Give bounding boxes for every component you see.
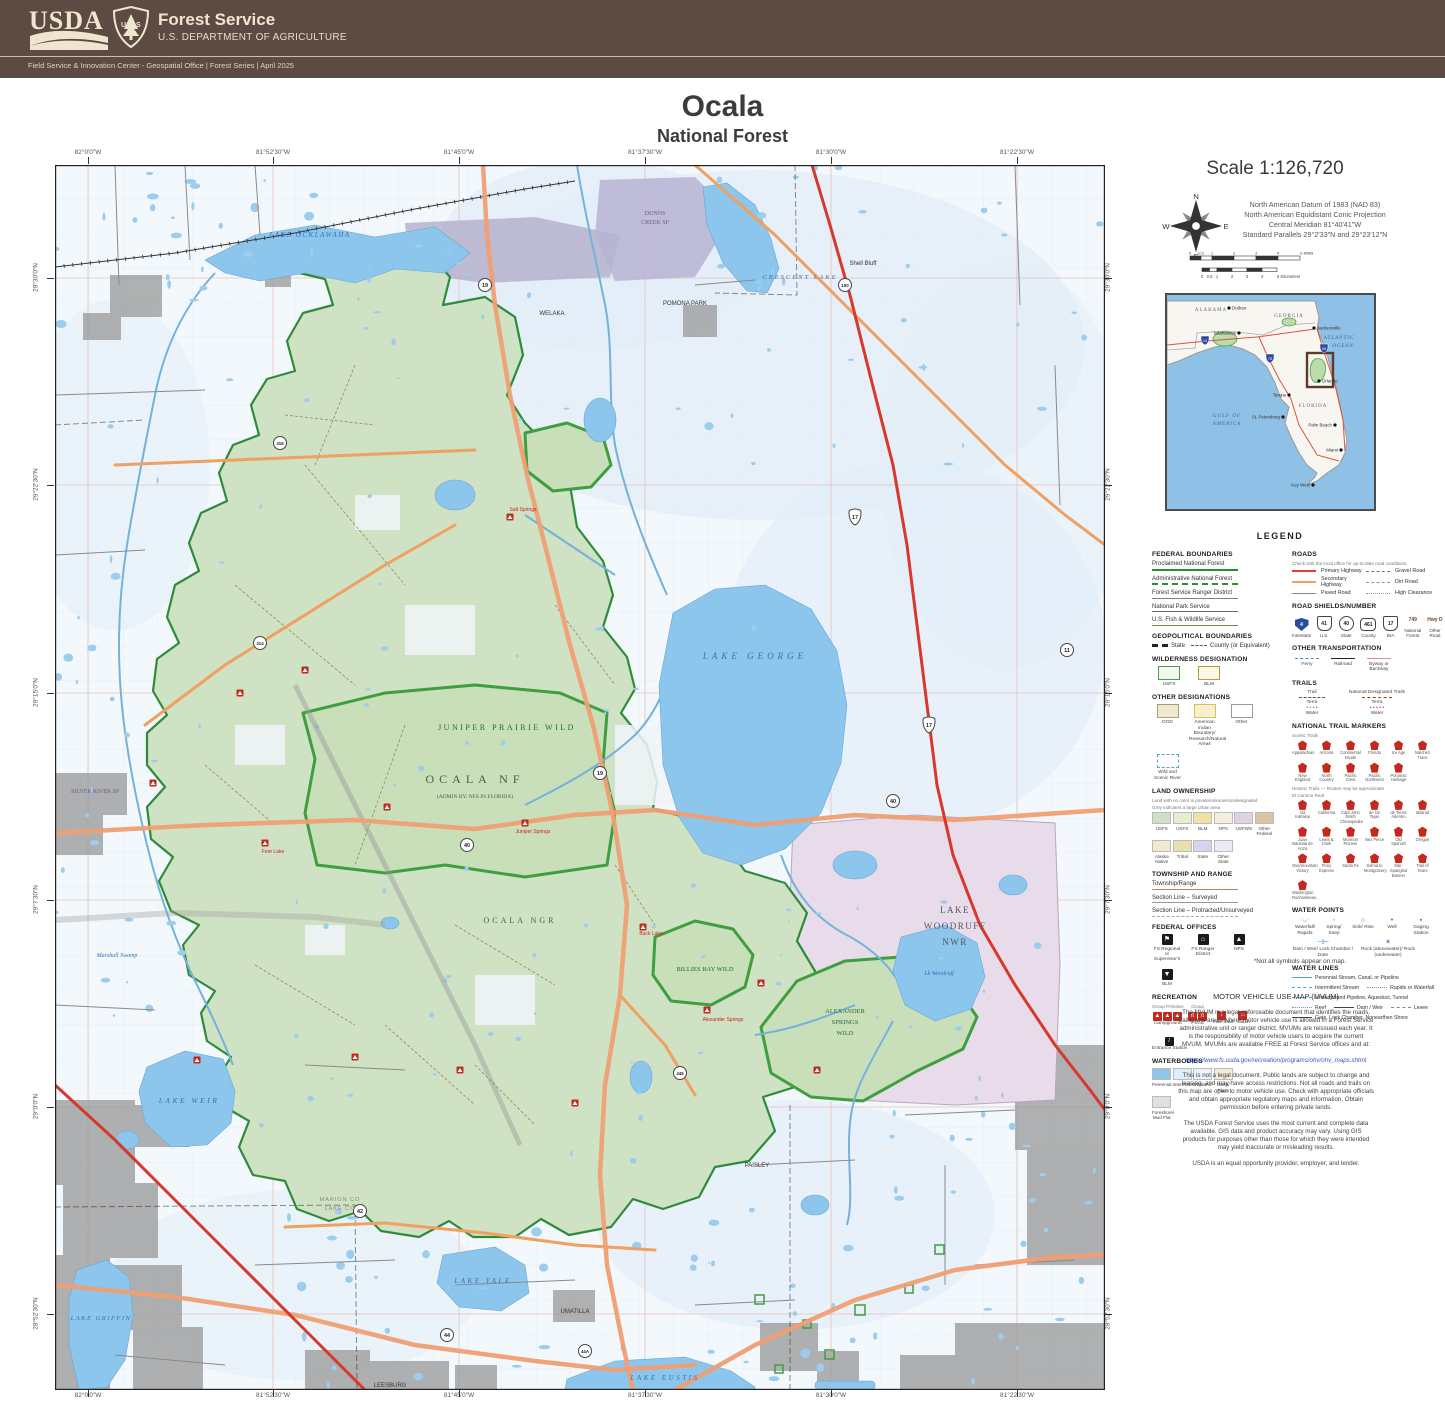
road-shield-sample: 41U.S. [1315,616,1333,638]
svg-text:11: 11 [1064,648,1070,654]
legend-col-2: ROADSCheck with the local office for up-… [1292,551,1444,1025]
campground-icon [457,1067,464,1074]
map-label: PAISLEY [745,1163,770,1169]
legend-swatch: Foreshore/ Mud Flat [1152,1096,1172,1120]
map-label: LAKE OCKLAWAHA [268,231,350,239]
legend-heading: TOWNSHIP AND RANGE [1152,871,1286,878]
svg-text:1: 1 [1216,274,1219,279]
trail-marker-icon: Mormon Pioneer [1340,827,1361,852]
campground-icon [507,514,514,521]
campground-icon [352,1054,359,1061]
scale-text: Scale 1:126,720 [1150,158,1400,180]
inset-region-label: AMERICA [1212,422,1241,427]
road-shield-sample: 461County [1359,618,1377,638]
legend-item: Administrative National Forest [1152,576,1286,586]
trail-marker-icon: Florida [1364,740,1385,760]
svg-text:10: 10 [1203,339,1207,343]
inset-city-label: Tampa [1273,393,1287,398]
lon-label: 81°52'30"W [243,149,303,156]
campground-icon [150,780,157,787]
trail-marker-icon: Santa Fe [1340,853,1361,878]
road-shield-sample: 749National Forest [1404,613,1422,638]
legend-swatch: DOD [1152,704,1183,726]
trail-marker-icon: Iditarod [1412,800,1433,825]
map-label: LAKE CO [325,1206,356,1212]
svg-text:40: 40 [464,843,470,849]
lon-label: 82°0'0"W [58,149,118,156]
svg-text:E: E [1224,222,1229,231]
lon-label: 81°45'0"W [429,149,489,156]
map-label: ALEXANDER [825,1008,865,1015]
map-label: MARION CO [320,1197,361,1203]
lon-label: 81°22'30"W [987,149,1047,156]
legend-heading: FEDERAL BOUNDARIES [1152,551,1286,558]
trail-marker-icon: Old Spanish [1388,827,1409,852]
trail-marker-icon: Pacific Crest [1340,763,1361,783]
road-shield: 11 [1061,644,1074,657]
map-label: Salt Springs [510,507,537,513]
legend-heading: TRAILS [1292,680,1444,687]
svg-text:445: 445 [676,1071,684,1076]
map-label: Shell Bluff [850,261,877,267]
inset-region-label: ALABAMA [1195,308,1227,313]
water-point-icon: ⊣⊢Dam / Weir/ Lock Chamber / Date [1292,939,1354,958]
legend-swatch: BLM [1192,666,1226,688]
trail-marker-icon: Continental Divide [1340,740,1361,760]
trail-marker-icon: California [1316,800,1337,825]
inset-city-label: Tallahassee [1213,331,1237,336]
mvum-paragraph: This is not a legal document. Public lan… [1178,1072,1374,1112]
mvum-paragraph: The MVUM is a legal enforceable document… [1178,1009,1374,1049]
legend-item: State [1152,643,1185,649]
inset-region-label: FLORIDA [1299,404,1328,409]
map-label: Alexander Springs [703,1017,744,1023]
trail-marker-icon: North Country [1316,763,1337,783]
map-label: WOODRUFF [924,921,987,931]
legend-heading: OTHER DESIGNATIONS [1152,694,1286,701]
legend-heading: WATER POINTS [1292,907,1444,914]
trail-marker-icon: Nez Perce [1364,827,1385,852]
svg-text:2: 2 [1233,252,1236,256]
map-label: OCALA NGR [483,916,556,925]
svg-text:W: W [1162,222,1170,231]
road-shield-sample: 4Interstate [1292,618,1311,638]
map-label: CREEK SP [641,220,670,226]
svg-text:5 Miles: 5 Miles [1300,252,1313,256]
inset-region-label: GULF OF [1213,414,1241,419]
legend-item: Section Line – Surveyed [1152,895,1286,904]
map-label: Lk Woodruff [923,970,955,977]
campground-icon [384,804,391,811]
svg-text:4: 4 [1277,252,1280,256]
legend-swatch: NPS [1214,812,1234,831]
svg-text:100: 100 [841,283,849,288]
map-label: DUNNS [645,211,666,217]
map-label: LAKE [940,905,970,915]
svg-text:314: 314 [256,641,264,646]
water-point-icon: ✶Rock (abovewater)/ Rock (underwater) [1357,939,1419,958]
lat-label: 28°52'30"N [33,1292,40,1336]
projection-info: North American Datum of 1983 (NAD 83) No… [1230,200,1400,240]
legend-item: Township/Range [1152,881,1286,890]
legend-heading: FEDERAL OFFICES [1152,924,1286,931]
inset-city-dot [1339,448,1342,451]
lat-label: 29°15'0"N [33,671,40,715]
mvum-paragraph: USDA is an equal opportunity provider, e… [1178,1160,1374,1168]
legend-swatch: Other State [1214,840,1234,864]
svg-text:0: 0 [1189,252,1192,256]
svg-text:95: 95 [1322,347,1326,351]
road-shield: 44 [441,1329,454,1342]
svg-text:3: 3 [1255,252,1258,256]
legend-item: Section Line – Protracted/Unsurveyed [1152,908,1286,917]
legend-swatch: USFS [1152,666,1186,688]
svg-text:3: 3 [1246,274,1249,279]
trail-marker-icon: Selma to Montgomery [1364,853,1385,878]
svg-text:5 Kilometers: 5 Kilometers [1277,274,1300,279]
trail-marker-icon: Trail of Tears [1412,853,1433,878]
trail-marker-icon: Ice Age [1388,740,1409,760]
federal-office-icon: ⚑FS Regional or Supervisor's [1152,934,1182,963]
svg-text:42: 42 [357,1209,363,1215]
svg-text:0.5: 0.5 [1198,252,1204,256]
road-shield-sample: 40State [1337,616,1355,638]
legend-heading: OTHER TRANSPORTATION [1292,645,1444,652]
legend-heading: ROADS [1292,551,1444,558]
transport-item: Railroad [1328,655,1358,667]
svg-text:75: 75 [1268,357,1272,361]
legend-item: Forest Service Ranger District [1152,590,1286,599]
trail-marker-icon: Juan Bautista de Anza [1292,827,1313,852]
campground-icon [194,1057,201,1064]
water-point-icon: ▪Gaging Station [1408,917,1434,936]
inset-city-dot [1281,415,1284,418]
mvum-block: MOTOR VEHICLE USE MAP (MVUM) The MVUM is… [1178,992,1374,1176]
inset-region-label: ATLANTIC [1323,336,1355,341]
water-line-item: Intermittent Stream [1292,985,1359,991]
svg-text:0.5: 0.5 [1207,274,1213,279]
map-label: SPRINGS [832,1019,859,1026]
mvum-title: MOTOR VEHICLE USE MAP (MVUM) [1178,992,1374,1001]
lat-label: 29°30'0"N [33,256,40,300]
florida-locator-inset: ALABAMAGEORGIAFLORIDAATLANTICOCEANGULF O… [1165,293,1376,511]
inset-city-dot [1287,393,1290,396]
svg-text:316: 316 [276,441,284,446]
road-shield: 100 [839,279,852,292]
map-label: LAKE GRIFFIN [70,1315,132,1322]
legend-swatch: Other Federal [1255,812,1275,836]
svg-text:44A: 44A [581,1349,590,1354]
svg-text:1: 1 [1211,252,1214,256]
transport-item: Byway or Backway [1364,655,1394,673]
trail-marker-icon: Appalachian [1292,740,1313,760]
map-label: CRESCENT LAKE [762,274,837,281]
map-label: WILD [837,1030,854,1037]
road-shield: 19 [594,767,607,780]
trail-marker-icon: Pacific Northwest [1364,763,1385,783]
trail-marker-icon: de los Tejas [1364,800,1385,825]
map-sheet: USDA U S Forest Service U.S. DEPARTMENT … [0,0,1445,1415]
water-line-item: Levee [1391,1005,1428,1011]
svg-text:17: 17 [852,515,858,521]
map-label: JUNIPER PRAIRIE WILD [438,723,576,732]
legend-swatch: USFS [1173,812,1193,831]
trail-marker-icon: Potomac Heritage [1388,763,1409,783]
mvum-link[interactable]: https://www.fs.usda.gov/recreation/progr… [1178,1057,1374,1064]
lon-label: 81°30'0"W [801,149,861,156]
legend-heading: GEOPOLITICAL BOUNDARIES [1152,633,1286,640]
campground-icon [758,980,765,987]
federal-office-icon: ▲NPS [1224,934,1254,952]
road-shield-sample: Hwy DOther Road [1426,613,1444,638]
inset-city-dot [1237,331,1240,334]
federal-office-icon: ⌂FS Ranger District [1188,934,1218,958]
map-label: (ADMIN BY: NFS IN FLORIDA) [437,793,513,800]
trail-marker-icon: New England [1292,763,1313,783]
svg-text:19: 19 [597,771,603,777]
trail-marker-icon: Washington Rochambeau [1292,880,1313,900]
legend-swatch: American Indian Boundary/ Research/Natur… [1189,704,1220,748]
inset-city-label: Dothan [1232,306,1247,311]
legend-swatch: Tribal [1173,840,1193,859]
water-point-icon: ○Sink/ Rise [1350,917,1376,936]
map-label: Marshall Swamp [96,953,138,959]
legend-title: LEGEND [1150,531,1410,541]
road-shield: 314 [254,637,267,650]
trail-marker-icon: Oregon [1412,827,1433,852]
lon-label: 81°37'30"W [615,149,675,156]
trail-marker-icon: Natchez Trace [1412,740,1433,760]
svg-text:4: 4 [1261,274,1264,279]
inset-city-label: Key West [1291,483,1310,488]
legend-heading: ROAD SHIELDS/NUMBER [1292,603,1444,610]
legend-item: County (or Equivalent) [1191,643,1270,649]
water-point-icon: ⌵Waterfall/ Rapids [1292,917,1318,936]
svg-text:0: 0 [1201,274,1204,279]
transport-item: Ferry [1292,655,1322,667]
campground-icon [302,667,309,674]
legend-heading: LAND OWNERSHIP [1152,788,1286,795]
map-label: Fore Lake [262,849,285,855]
legend-swatch: State [1193,840,1213,859]
map-canvas: 19100171940403143161744542441144A LAKE O… [55,165,1105,1390]
lat-label: 29°7'30"N [33,878,40,922]
campground-icon [522,820,529,827]
map-label: UMATILLA [561,1309,590,1315]
water-line-item: Rapids or Waterfall [1367,985,1434,991]
legend-heading: WATER LINES [1292,965,1444,972]
map-label: POMONA PARK [663,301,707,307]
road-shield: 19 [479,279,492,292]
trail-marker-icon: Pony Express [1316,853,1337,878]
inset-region-label: GEORGIA [1274,314,1304,319]
campground-icon [572,1100,579,1107]
road-shield: 316 [274,437,287,450]
legend-swatch: BLM [1193,812,1213,831]
scale-bars: 00.512345 Miles00.512345 Kilometers [1182,252,1362,284]
trail-marker-icon: Arizona [1316,740,1337,760]
legend-swatch: Alaska Native [1152,840,1172,864]
lat-label: 29°0'0"N [33,1085,40,1129]
legend-footnote: *Not all symbols appear on map. [1190,958,1410,965]
road-shield: 40 [461,839,474,852]
legend-swatch: Perennial [1152,1068,1172,1087]
legend-item: U.S. Fish & Wildlife Service [1152,617,1286,626]
trail-marker-icon: Lewis & Clark [1316,827,1337,852]
svg-text:2: 2 [1231,274,1234,279]
legend-heading: NATIONAL TRAIL MARKERS [1292,723,1444,730]
map-label: LAKE YALE [453,1277,511,1285]
campground-icon [237,690,244,697]
compass-rose-icon: N S E W [1162,192,1230,260]
legend-swatch: USFWS [1234,812,1254,831]
campground-icon [640,924,647,931]
road-shield: 40 [887,795,900,808]
map-label: LAKE WEIR [158,1096,220,1105]
road-shield: 42 [354,1205,367,1218]
map-label: WELAKA [539,311,564,317]
map-label: LAKE EUSTIS [630,1374,700,1382]
water-line-item: Perennial Stream, Canal, or Pipeline [1292,975,1399,981]
map-label: SILVER RIVER SP [71,789,120,795]
legend-item: Proclaimed National Forest [1152,561,1286,571]
map-label: BILLIES BAY WILD [676,966,733,973]
inset-city-dot [1317,379,1320,382]
federal-office-icon: ▼BLM [1152,969,1182,987]
legend-item: National Park Service [1152,604,1286,613]
road-shield: 445 [674,1067,687,1080]
map-label: Buck Lake [639,931,663,937]
water-point-icon: •Well [1379,917,1405,936]
legend-swatch: Wild and Scenic River [1152,754,1183,781]
inset-city-label: Miami [1326,448,1338,453]
inset-city-dot [1333,423,1336,426]
svg-text:40: 40 [890,799,896,805]
inset-city-label: St. Petersburg [1252,415,1281,420]
map-label: OCALA NF [425,772,524,786]
trail-marker-icon: Overmountain Victory [1292,853,1313,878]
inset-city-dot [1311,483,1314,486]
campground-icon [262,840,269,847]
trail-marker-icon: Ala Kahakai [1292,800,1313,825]
map-label: LEESBURG [374,1383,407,1389]
legend-heading: WILDERNESS DESIGNATION [1152,656,1286,663]
campground-icon [814,1067,821,1074]
map-label: LAKE GEORGE [702,651,807,661]
inset-city-label: Jacksonville [1317,326,1341,331]
inset-region-label: OCEAN [1332,344,1353,349]
svg-text:19: 19 [482,283,488,289]
inset-city-dot [1227,306,1230,309]
inset-city-label: Palm Beach [1308,423,1332,428]
svg-text:17: 17 [926,723,932,729]
trail-marker-icon: Capt John Smith Chesapeake [1340,800,1361,825]
road-shield: 44A [579,1345,592,1358]
legend-swatch: Other [1226,704,1257,726]
lat-label: 29°22'30"N [33,463,40,507]
campground-icon [704,1007,711,1014]
legend-swatch: USFS [1152,812,1172,831]
inset-city-label: Orlando [1322,379,1338,384]
inset-city-dot [1312,326,1315,329]
road-shield-sample: 17BIA [1382,616,1400,638]
map-label: NWR [942,937,968,947]
mvum-paragraph: The USDA Forest Service uses the most cu… [1178,1120,1374,1152]
trail-marker-icon: Star-Spangled Banner [1388,853,1409,878]
svg-text:44: 44 [444,1333,450,1339]
trail-marker-icon: de Tierra Adentro [1388,800,1409,825]
map-label: Juniper Springs [516,829,551,835]
water-point-icon: ◦Spring/ Seep [1321,917,1347,936]
svg-text:N: N [1193,192,1199,201]
